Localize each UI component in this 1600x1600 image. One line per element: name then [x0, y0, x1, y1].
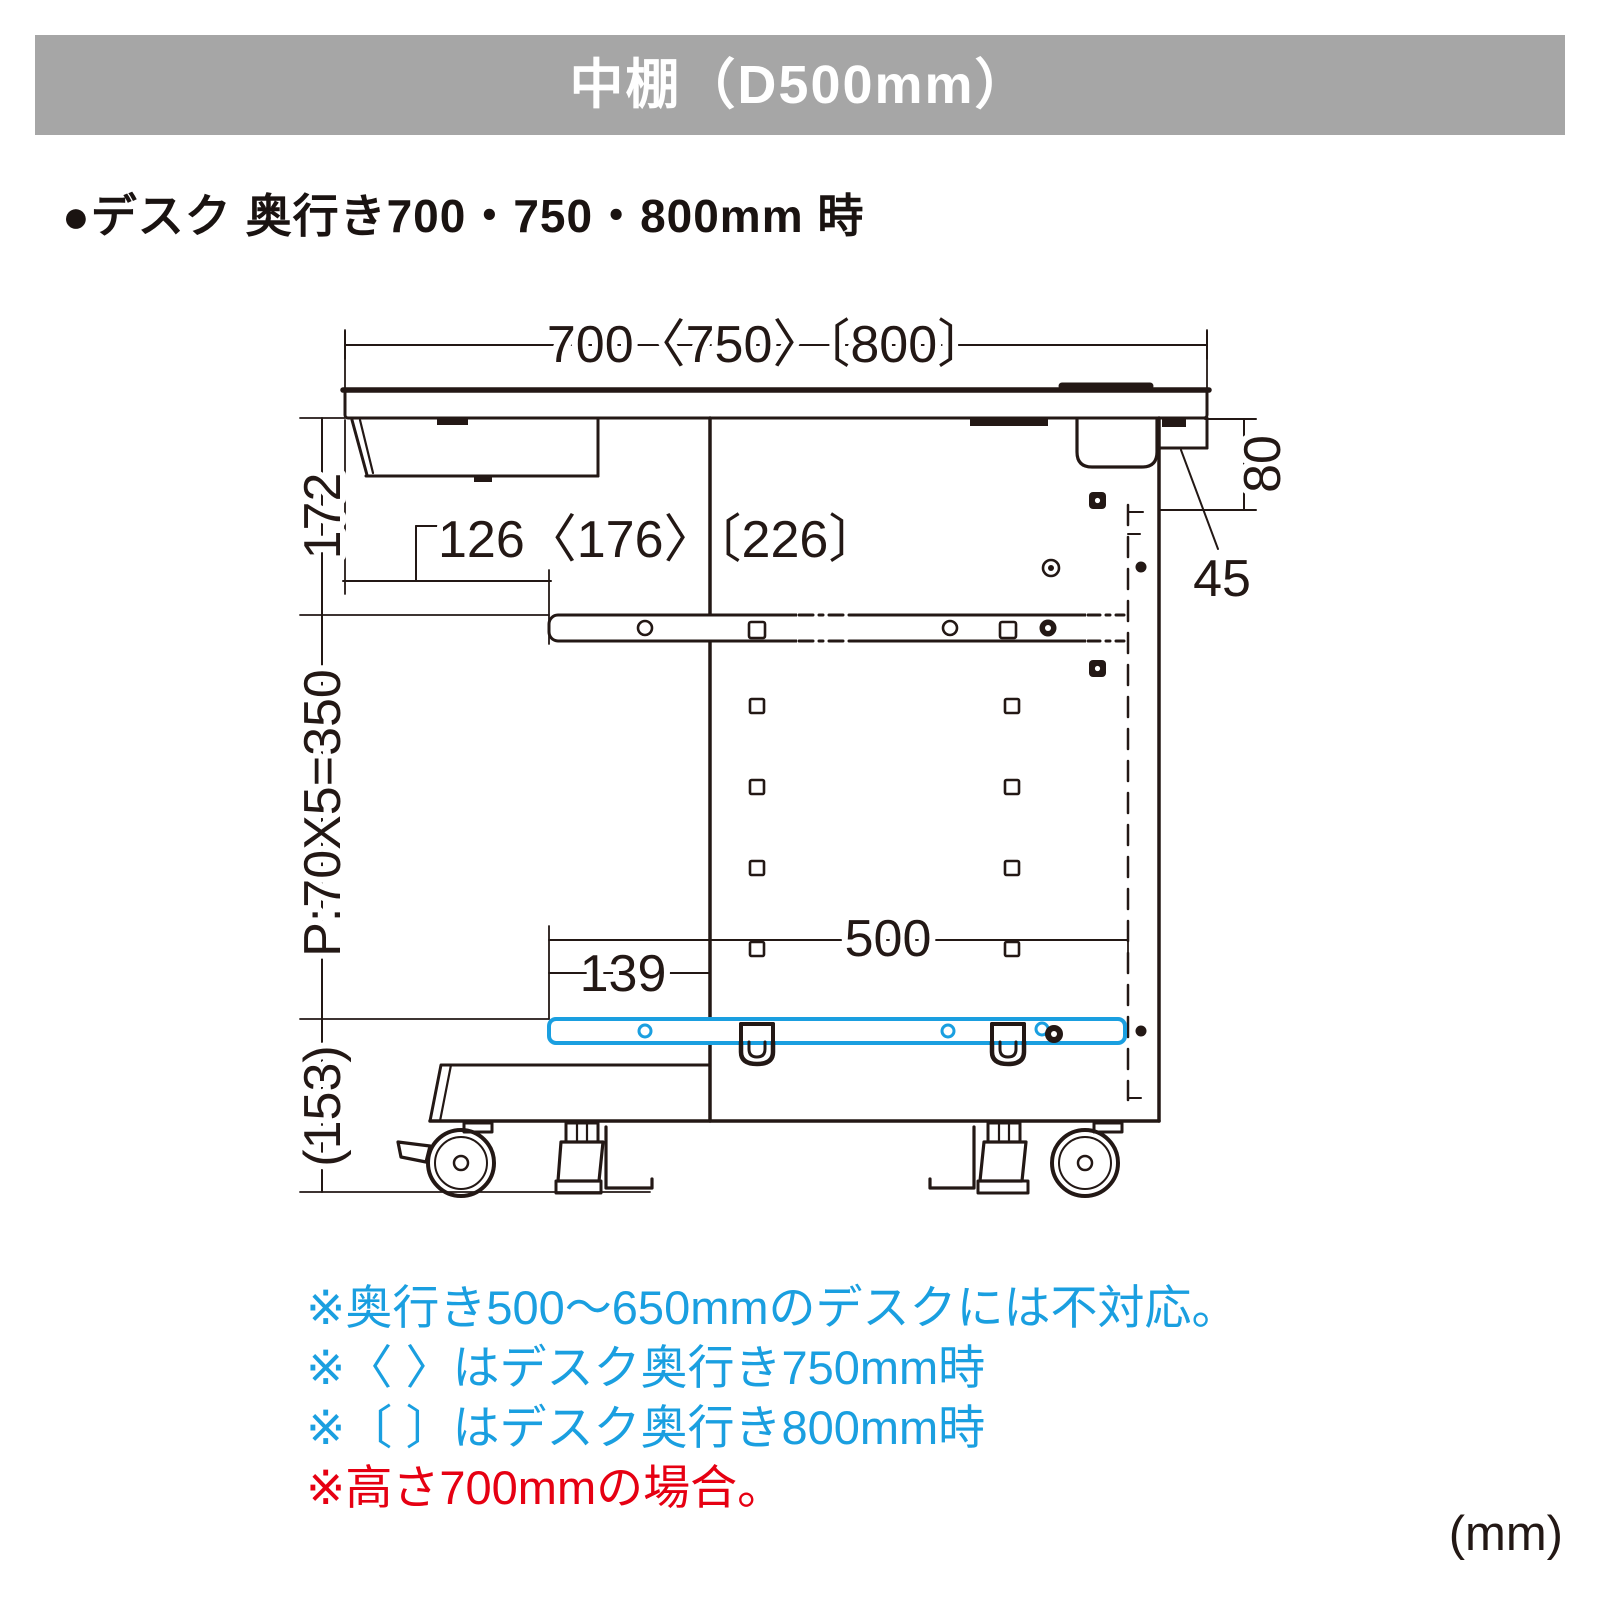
dim-desk-depth: 700〈750〉〔800〕 — [547, 316, 989, 374]
panel-holes — [750, 492, 1147, 1037]
caster-wheel-icon — [1052, 1123, 1122, 1196]
adjuster-foot-icon — [556, 1123, 652, 1193]
base-pedestal — [430, 1065, 1159, 1121]
foot-bracket-icon — [606, 1127, 652, 1188]
footnotes: ※奥行き500〜650mmのデスクには不対応。 ※〈 〉はデスク奥行き750mm… — [306, 1278, 1239, 1518]
adjuster-foot-icon — [930, 1123, 1028, 1193]
page: 中棚（D500mm） ●デスク 奥行き700・750・800mm 時 — [0, 0, 1600, 1600]
note-square-bracket-800: ※〔 〕はデスク奥行き800mm時 — [306, 1398, 1239, 1458]
dim-top-to-rail: 172 — [294, 473, 352, 560]
rivet-mark — [1136, 1026, 1147, 1037]
note-depth-incompatible: ※奥行き500〜650mmのデスクには不対応。 — [306, 1278, 1239, 1338]
bolt-icon — [1089, 492, 1106, 677]
rivet-mark — [1136, 562, 1147, 573]
desk-tabletop — [345, 390, 1207, 418]
note-angle-bracket-750: ※〈 〉はデスク奥行き750mm時 — [306, 1338, 1239, 1398]
cable-tray — [352, 420, 598, 482]
foot-bracket-icon — [930, 1127, 974, 1188]
desk-clip-left — [437, 418, 468, 425]
dim-shelf-depth: 500 — [845, 910, 932, 968]
dim-caster-height: (153) — [294, 1045, 352, 1166]
dim-hole-pitch: P:70X5=350 — [294, 669, 352, 957]
support-rail — [549, 610, 1126, 646]
dim-rail-drop: 80 — [1234, 435, 1292, 493]
dim-tray-setback: 126〈176〉〔226〕 — [438, 511, 880, 569]
casters — [398, 1123, 1122, 1196]
dim-shelf-front-offset: 139 — [580, 945, 667, 1003]
rear-bracket — [1077, 420, 1157, 467]
note-height-700: ※高さ700mmの場合。 — [306, 1458, 1239, 1518]
desk-outline — [343, 386, 1209, 1121]
caster-wheel-icon — [398, 1123, 494, 1196]
brake-lever-icon — [398, 1142, 430, 1162]
middle-shelf — [549, 1019, 1125, 1064]
desk-clip-right — [970, 418, 1048, 426]
dim-rear-offset: 45 — [1193, 550, 1251, 608]
desk-clip-corner — [1162, 419, 1186, 427]
unit-label: (mm) — [1449, 1506, 1563, 1562]
